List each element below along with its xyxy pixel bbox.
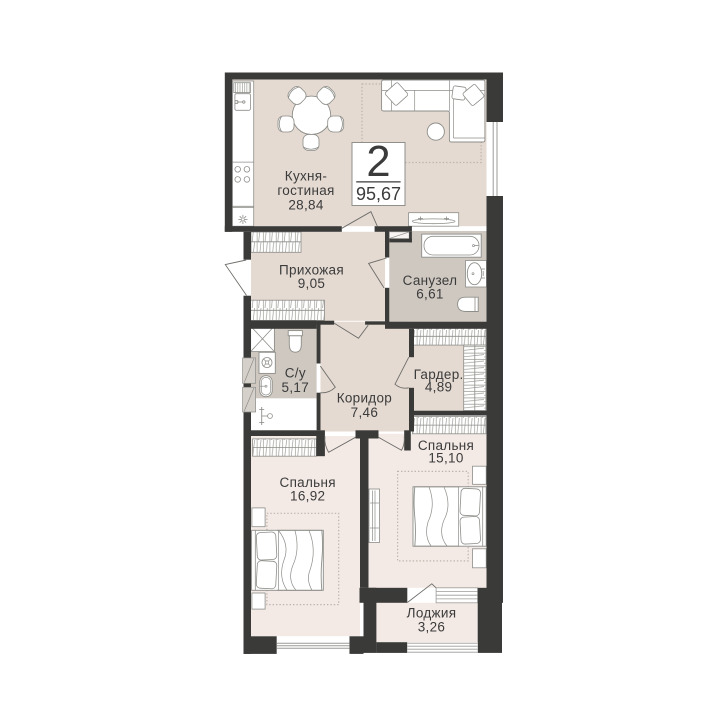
svg-text:95,67: 95,67 [356,184,401,204]
svg-text:6,61: 6,61 [416,286,443,301]
svg-text:Лоджия: Лоджия [407,606,457,621]
svg-text:2: 2 [366,138,390,186]
svg-text:4,89: 4,89 [425,380,452,395]
svg-text:9,05: 9,05 [298,276,325,291]
svg-text:7,46: 7,46 [351,405,378,420]
svg-text:Кухня-: Кухня- [285,168,327,183]
svg-text:16,92: 16,92 [290,489,325,504]
svg-text:С/у: С/у [285,366,306,381]
svg-text:15,10: 15,10 [428,451,463,466]
svg-text:гостиная: гостиная [277,183,334,198]
svg-text:5,17: 5,17 [282,380,309,395]
svg-text:28,84: 28,84 [288,197,323,212]
svg-text:Коридор: Коридор [337,390,392,405]
svg-text:3,26: 3,26 [418,620,445,635]
